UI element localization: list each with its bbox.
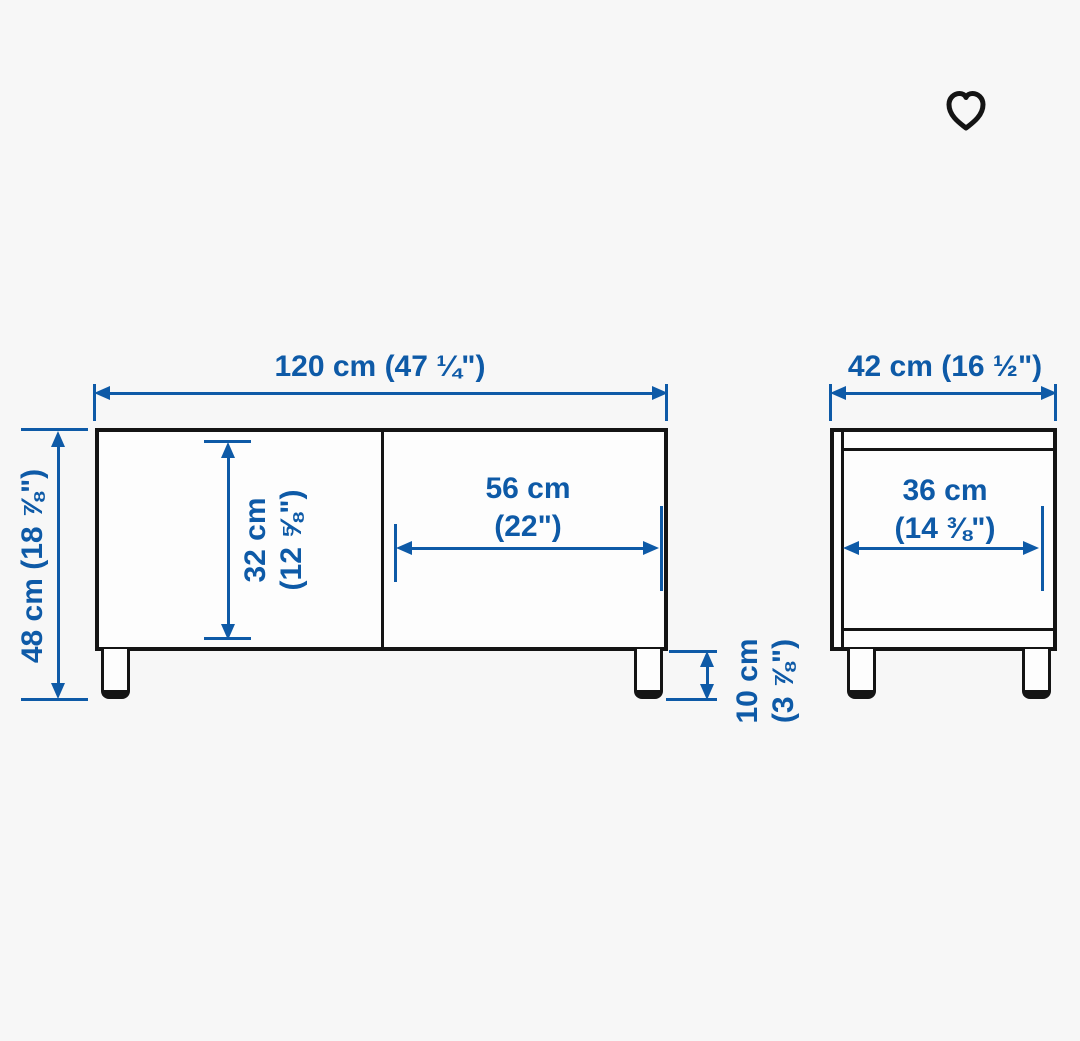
front-leg-height-cm: 10 cm <box>730 626 766 736</box>
front-inner-height-in: (12 ⅝") <box>274 430 310 650</box>
dimension-line <box>227 450 230 632</box>
front-inner-height-label: 32 cm (12 ⅝") <box>238 430 310 650</box>
extension-tick <box>660 506 663 591</box>
arrowhead-right-icon <box>1023 541 1039 555</box>
front-inner-height-dimension-arrow <box>221 442 236 640</box>
side-back-leg <box>1022 649 1051 699</box>
extension-tick <box>93 384 96 421</box>
dimension-line <box>404 547 651 550</box>
extension-tick <box>204 637 251 640</box>
front-inner-width-in: (22") <box>397 509 659 545</box>
arrowhead-right-icon <box>643 541 659 555</box>
front-width-dimension-arrow <box>94 386 668 401</box>
dimension-line <box>102 392 660 395</box>
arrowhead-left-icon <box>94 386 110 400</box>
front-width-label: 120 cm (47 ¼") <box>180 349 580 385</box>
side-inner-depth-cm: 36 cm <box>845 473 1045 509</box>
side-depth-dimension-arrow <box>830 386 1057 401</box>
side-door-front-line <box>841 430 844 649</box>
front-leg-height-dimension-arrow <box>700 651 715 700</box>
extension-tick <box>665 384 668 421</box>
extension-tick <box>669 650 717 653</box>
front-left-leg <box>101 649 130 699</box>
front-inner-height-cm: 32 cm <box>238 430 274 650</box>
front-leg-height-in: (3 ⅞") <box>766 626 802 736</box>
front-door-divider-line <box>381 430 384 649</box>
arrowhead-left-icon <box>396 541 412 555</box>
extension-tick <box>1054 384 1057 421</box>
arrowhead-left-icon <box>843 541 859 555</box>
arrowhead-up-icon <box>221 442 235 458</box>
arrowhead-down-icon <box>51 683 65 699</box>
arrowhead-up-icon <box>51 431 65 447</box>
dimension-line <box>851 547 1031 550</box>
extension-tick <box>666 698 717 701</box>
dimension-line <box>57 439 60 691</box>
heart-icon <box>942 87 990 135</box>
front-inner-width-dimension-arrow <box>396 541 659 556</box>
extension-tick <box>204 440 251 443</box>
arrowhead-up-icon <box>700 651 714 667</box>
front-inner-width-cm: 56 cm <box>397 471 659 507</box>
side-bottom-panel-line <box>844 628 1055 631</box>
extension-tick <box>1041 506 1044 591</box>
dimension-line <box>838 392 1049 395</box>
dimension-diagram-page: 120 cm (47 ¼") 48 cm (18 ⅞") 32 cm (12 ⅝… <box>0 0 1080 1041</box>
front-height-label: 48 cm (18 ⅞") <box>15 420 51 712</box>
extension-tick <box>394 524 397 582</box>
extension-tick <box>21 428 88 431</box>
front-height-dimension-arrow <box>51 431 66 699</box>
arrowhead-left-icon <box>830 386 846 400</box>
front-right-leg <box>634 649 663 699</box>
side-top-panel-line <box>844 448 1055 451</box>
favorite-button[interactable] <box>936 81 996 141</box>
side-inner-depth-dimension-arrow <box>843 541 1039 556</box>
extension-tick <box>829 384 832 421</box>
front-leg-height-label: 10 cm (3 ⅞") <box>730 626 802 736</box>
extension-tick <box>21 698 88 701</box>
side-depth-label: 42 cm (16 ½") <box>795 349 1080 385</box>
side-front-leg <box>847 649 876 699</box>
